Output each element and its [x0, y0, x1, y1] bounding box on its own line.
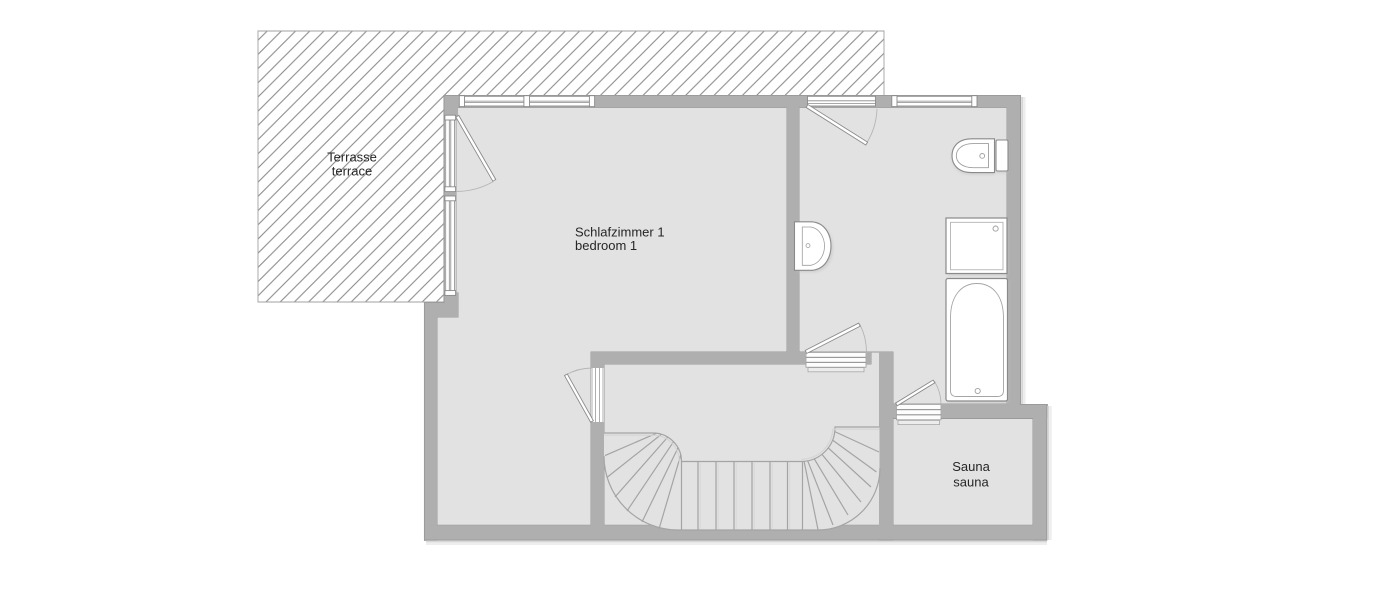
svg-text:bedroom 1: bedroom 1 — [575, 238, 637, 253]
svg-text:terrace: terrace — [332, 163, 372, 178]
svg-text:Terrasse: Terrasse — [327, 150, 377, 165]
svg-text:sauna: sauna — [953, 475, 989, 490]
svg-text:Sauna: Sauna — [952, 459, 990, 474]
